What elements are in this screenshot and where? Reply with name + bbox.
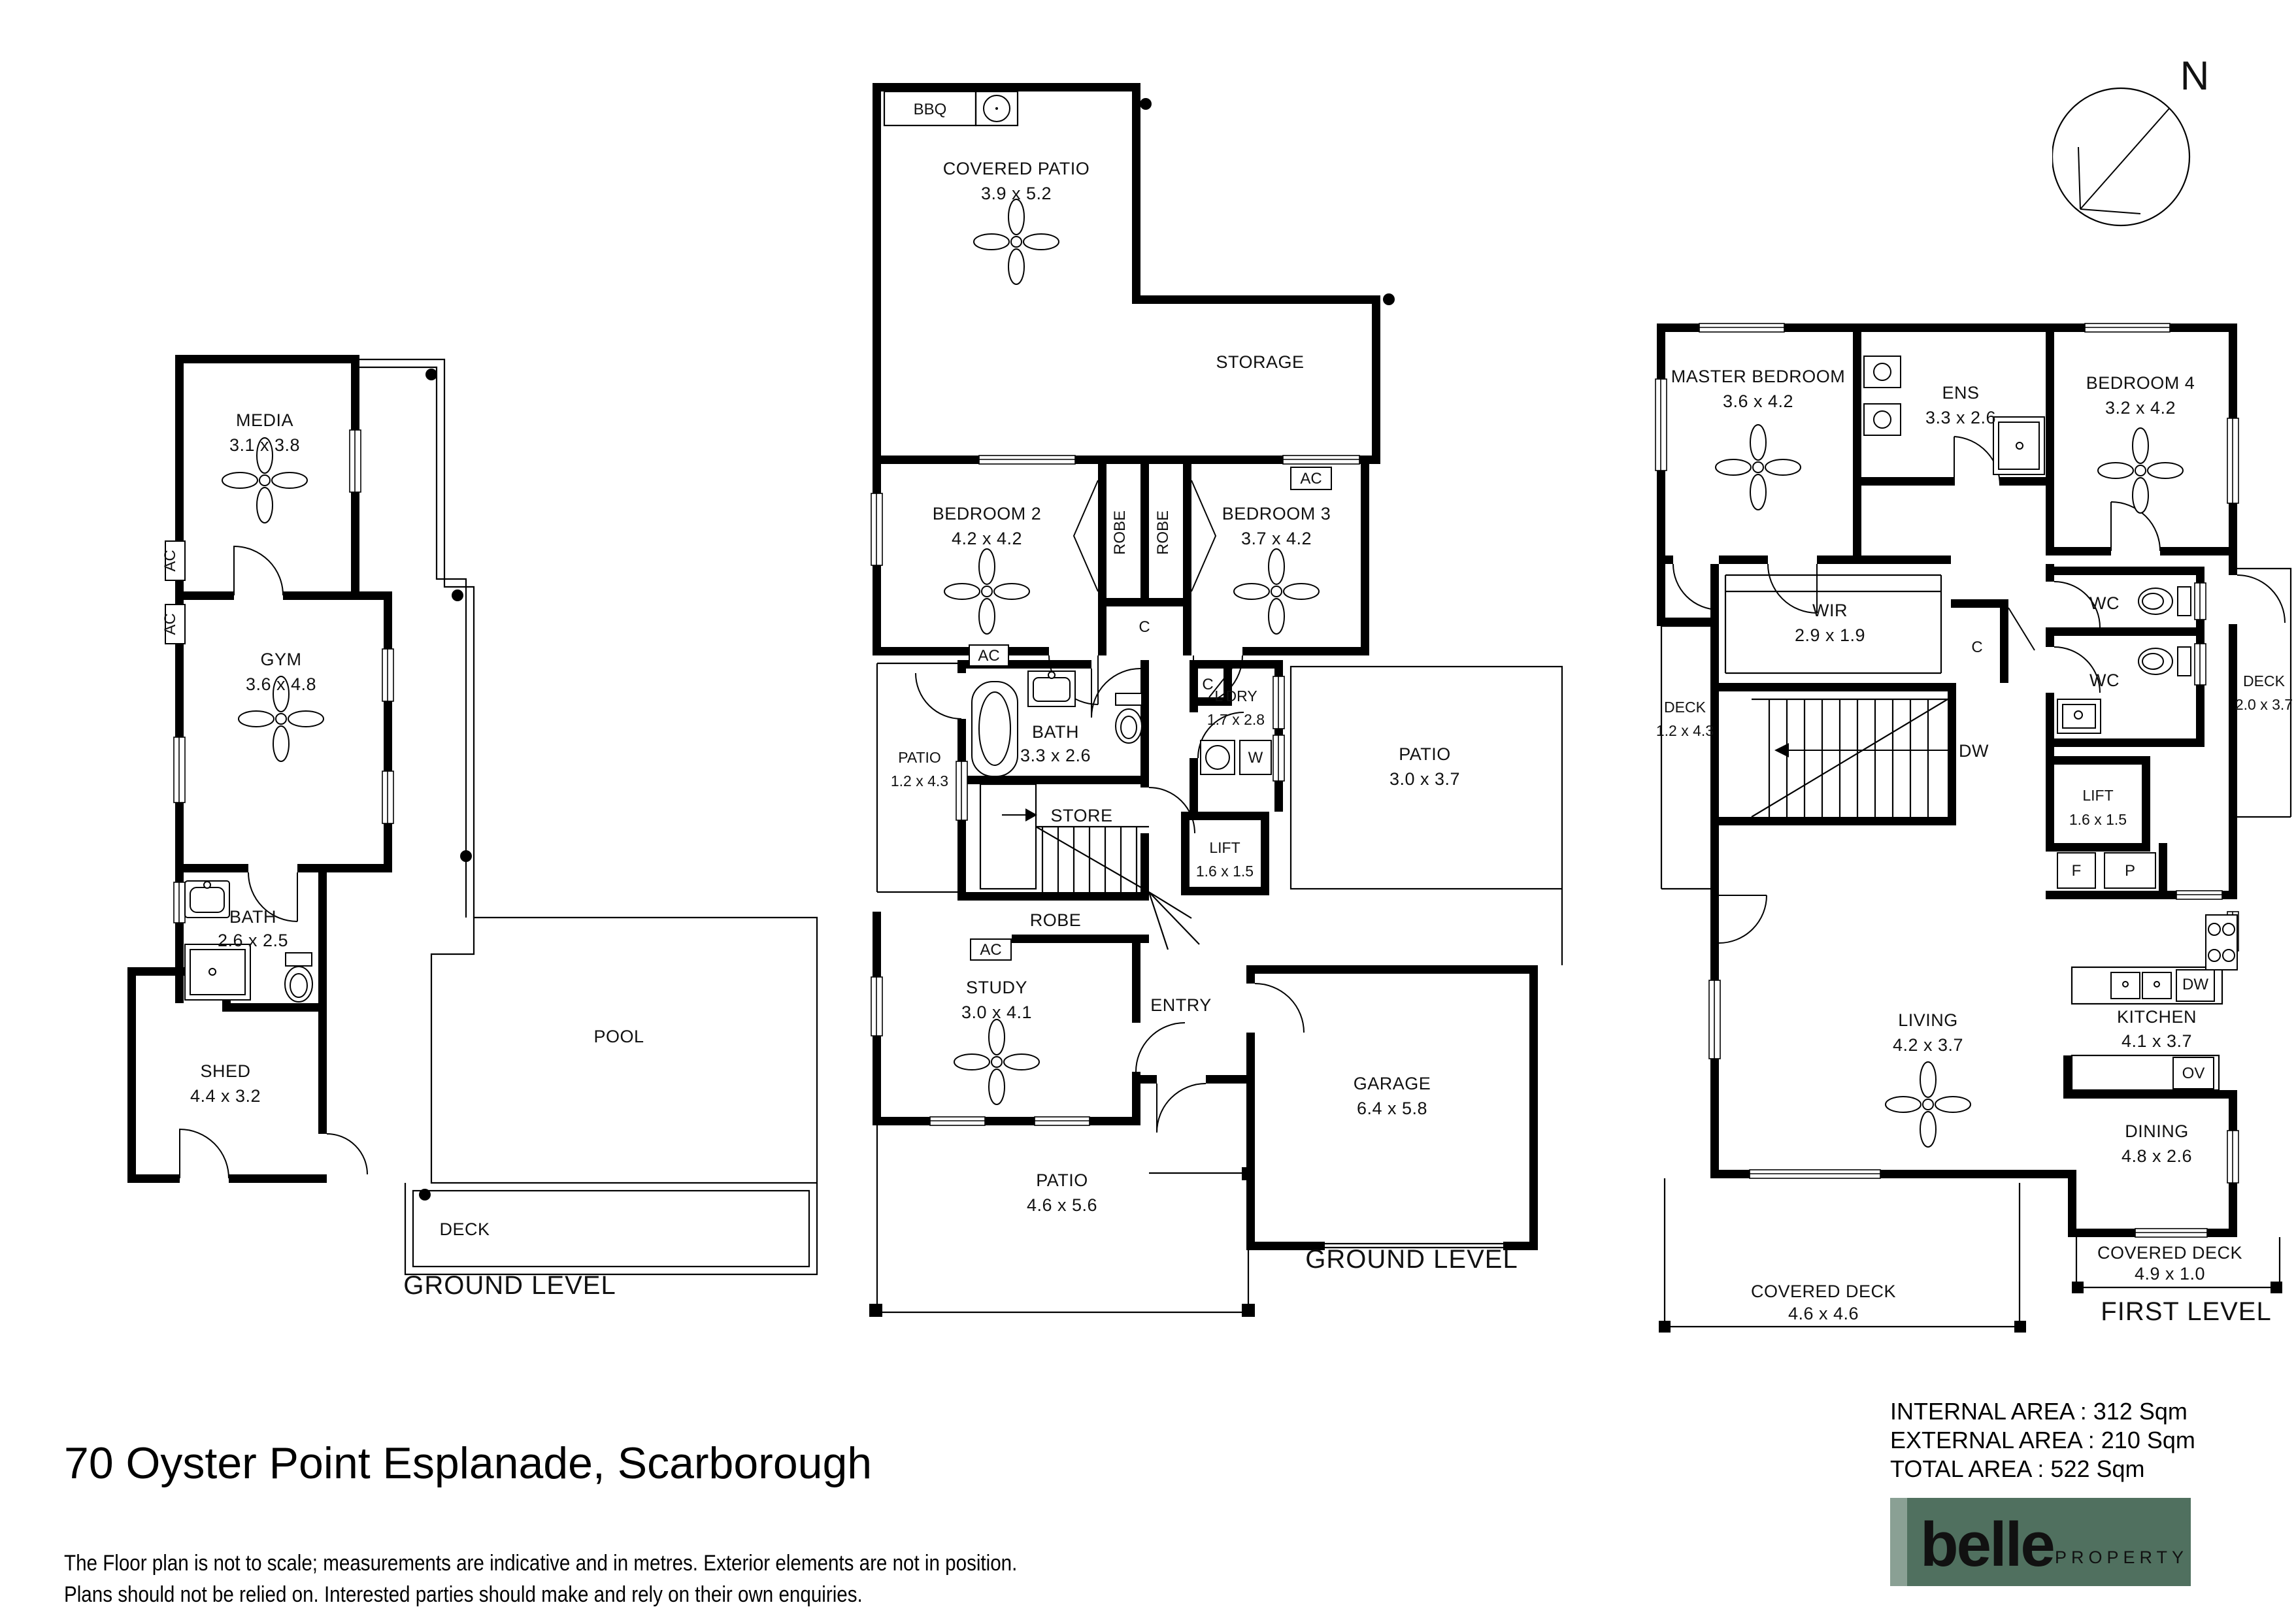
room-label-patio30: PATIO <box>1399 744 1451 764</box>
patio46-outline <box>877 1125 1248 1312</box>
room-dim-patio46: 4.6 x 5.6 <box>1027 1195 1097 1215</box>
room-dim-cdeck46: 4.6 x 4.6 <box>1788 1304 1859 1323</box>
room-label-wir: WIR <box>1812 601 1848 620</box>
ac-tag: AC <box>161 550 179 571</box>
room-label-dining: DINING <box>2125 1121 2189 1141</box>
shower-icon <box>185 944 250 1000</box>
room-label-bath: BATH <box>229 907 276 927</box>
room-dim-patio30: 3.0 x 3.7 <box>1389 769 1460 789</box>
room-label-shed: SHED <box>200 1061 250 1081</box>
room-dim-bath: 2.6 x 2.5 <box>218 931 288 950</box>
fridge-label: F <box>2072 862 2082 880</box>
room-label-study: STUDY <box>966 978 1027 997</box>
room-dim-wir: 2.9 x 1.9 <box>1795 625 1865 645</box>
level-title: GROUND LEVEL <box>1305 1245 1518 1274</box>
ac-tag: AC <box>161 613 179 635</box>
room-dim-master: 3.6 x 4.2 <box>1723 391 1793 411</box>
toilet-icon <box>2138 647 2191 676</box>
external-area: EXTERNAL AREA : 210 Sqm <box>1890 1426 2195 1455</box>
room-label-bed4: BEDROOM 4 <box>2086 373 2195 393</box>
bifold-door <box>1191 480 1216 591</box>
bifold-door <box>1074 480 1098 591</box>
room-label-master: MASTER BEDROOM <box>1671 367 1846 386</box>
dumbwaiter-label: DW <box>1959 741 1989 761</box>
room-label-cdeck46: COVERED DECK <box>1751 1282 1896 1301</box>
pantry-label: P <box>2125 862 2135 880</box>
room-label-deck12: DECK <box>1664 699 1706 716</box>
room-label-robe1: ROBE <box>1111 510 1129 555</box>
logo-accent-strip <box>1890 1498 1907 1586</box>
stove-icon <box>2206 915 2237 970</box>
logo-suffix-text: PROPERTY <box>2055 1548 2188 1567</box>
room-dim-ens: 3.3 x 2.6 <box>1925 408 1996 427</box>
ac-tag: AC <box>1300 470 1322 488</box>
room-label-gym: GYM <box>260 650 301 669</box>
room-dim-study: 3.0 x 4.1 <box>961 1003 1032 1022</box>
deck20-outline <box>2237 569 2291 817</box>
plan-first-level: MASTER BEDROOM 3.6 x 4.2 ENS 3.3 x 2.6 B… <box>1654 320 2296 1340</box>
laundry-tub-icon <box>1201 740 1235 774</box>
compass-north-label: N <box>2180 54 2210 99</box>
room-label-covered-patio: COVERED PATIO <box>943 159 1090 178</box>
dishwasher-label: DW <box>2182 976 2208 993</box>
room-label-bbq: BBQ <box>914 101 947 118</box>
room-labels: MASTER BEDROOM 3.6 x 4.2 ENS 3.3 x 2.6 B… <box>1656 367 2293 1326</box>
room-label-garage: GARAGE <box>1354 1074 1431 1093</box>
room-label-robe2: ROBE <box>1154 510 1172 555</box>
doors <box>180 546 367 1178</box>
room-dim-shed: 4.4 x 3.2 <box>190 1086 261 1106</box>
room-dim-cdeck49: 4.9 x 1.0 <box>2135 1264 2205 1284</box>
bbq-icon <box>884 91 1018 125</box>
room-dim-kitchen: 4.1 x 3.7 <box>2121 1031 2192 1051</box>
compass-needle <box>2080 108 2169 209</box>
disclaimer-line-2: Plans should not be relied on. Intereste… <box>64 1579 1017 1610</box>
room-dim-dining: 4.8 x 2.6 <box>2121 1146 2192 1166</box>
room-dim-bath: 3.3 x 2.6 <box>1020 746 1091 765</box>
room-label-ens: ENS <box>1942 383 1979 403</box>
total-area: TOTAL AREA : 522 Sqm <box>1890 1455 2195 1483</box>
stair-arrow-head <box>1774 743 1789 757</box>
oven-label: OV <box>2182 1065 2205 1082</box>
room-dim-bed4: 3.2 x 4.2 <box>2105 398 2176 418</box>
room-label-bath: BATH <box>1032 722 1079 742</box>
room-label-media: MEDIA <box>236 410 293 430</box>
ac-tag: AC <box>980 941 1001 959</box>
area-summary: INTERNAL AREA : 312 Sqm EXTERNAL AREA : … <box>1890 1397 2195 1483</box>
sink-icon <box>1028 671 1075 706</box>
toilet-icon <box>2138 587 2191 616</box>
room-dim-lift: 1.6 x 1.5 <box>1196 863 1254 880</box>
room-dim-gym: 3.6 x 4.8 <box>246 674 316 694</box>
room-label-entry: ENTRY <box>1150 995 1212 1015</box>
property-address: 70 Oyster Point Esplanade, Scarborough <box>64 1438 872 1489</box>
sink-icon <box>1864 356 1901 388</box>
room-dim-covered-patio: 3.9 x 5.2 <box>981 184 1052 203</box>
logo-brand-text: belle <box>1920 1510 2054 1580</box>
room-label-living: LIVING <box>1898 1010 1958 1030</box>
room-dim-deck20: 2.0 x 3.7 <box>2235 696 2293 713</box>
room-dim-garage: 6.4 x 5.8 <box>1357 1099 1427 1118</box>
belle-property-logo: belle PROPERTY <box>1890 1498 2191 1586</box>
room-dim-living: 4.2 x 3.7 <box>1893 1035 1963 1055</box>
room-label-wc1: WC <box>2089 593 2120 613</box>
room-labels: MEDIA 3.1 x 3.8 GYM 3.6 x 4.8 BATH 2.6 x… <box>190 410 644 1300</box>
room-label-wc2: WC <box>2089 671 2120 690</box>
room-label-kitchen: KITCHEN <box>2117 1007 2197 1027</box>
room-dim-patio12: 1.2 x 4.3 <box>891 772 948 789</box>
deck-pool-outlines <box>359 359 817 1274</box>
room-dim-ldry: 1.7 x 2.8 <box>1207 711 1265 728</box>
closet-label: C <box>1971 638 1982 656</box>
toilet-icon <box>285 953 312 1002</box>
room-label-bed2: BEDROOM 2 <box>933 504 1042 523</box>
floorplan-sheet: N <box>0 0 2296 1624</box>
closet-label: C <box>1139 618 1150 636</box>
room-label-deck: DECK <box>439 1219 490 1239</box>
plan-ground-level-outbuilding: AC AC MEDIA 3.1 x 3.8 GYM 3.6 x 4.8 BATH… <box>118 353 837 1301</box>
compass-icon: N <box>2052 29 2274 252</box>
room-label-robe3: ROBE <box>1030 910 1082 930</box>
plan-ground-level-main: AC AC AC BBQ COVERED PATIO 3.9 x 5.2 STO… <box>866 75 1578 1320</box>
room-label-pool: POOL <box>593 1027 644 1046</box>
ac-tag: AC <box>978 647 999 665</box>
room-dim-lift: 1.6 x 1.5 <box>2069 811 2127 828</box>
disclaimer: The Floor plan is not to scale; measurem… <box>64 1548 1017 1610</box>
level-title: FIRST LEVEL <box>2101 1297 2271 1326</box>
level-title: GROUND LEVEL <box>403 1271 616 1300</box>
room-dim-bed2: 4.2 x 4.2 <box>952 529 1022 548</box>
sink-icon <box>185 881 229 918</box>
room-label-ldry: L'DRY <box>1214 688 1257 704</box>
internal-area: INTERNAL AREA : 312 Sqm <box>1890 1397 2195 1426</box>
compass-arrowhead <box>2078 147 2140 214</box>
wardrobe-outline <box>1725 575 1941 673</box>
basin-icon <box>2057 699 2101 733</box>
shower-icon <box>1993 417 2044 474</box>
washer-label: W <box>1248 749 1263 767</box>
deck12-outline <box>1661 626 1710 889</box>
pool-outline <box>431 918 817 1183</box>
room-dim-bed3: 3.7 x 4.2 <box>1241 529 1312 548</box>
disclaimer-line-1: The Floor plan is not to scale; measurem… <box>64 1548 1017 1579</box>
toilet-icon <box>1116 693 1142 743</box>
bathtub-icon <box>972 682 1018 776</box>
room-label-bed3: BEDROOM 3 <box>1222 504 1331 523</box>
room-label-storage: STORAGE <box>1216 352 1304 372</box>
room-label-cdeck49: COVERED DECK <box>2097 1243 2242 1263</box>
room-label-patio12: PATIO <box>898 749 941 766</box>
closet-label: C <box>1202 676 1213 693</box>
room-label-store: STORE <box>1050 806 1112 825</box>
room-dim-deck12: 1.2 x 4.3 <box>1656 722 1714 739</box>
room-dim-media: 3.1 x 3.8 <box>229 435 300 455</box>
sink-icon <box>1864 404 1901 435</box>
room-label-deck20: DECK <box>2243 672 2286 689</box>
room-label-lift: LIFT <box>2082 787 2113 804</box>
room-label-lift: LIFT <box>1209 839 1240 856</box>
room-label-patio46: PATIO <box>1036 1170 1088 1190</box>
closet-door <box>2008 608 2035 650</box>
